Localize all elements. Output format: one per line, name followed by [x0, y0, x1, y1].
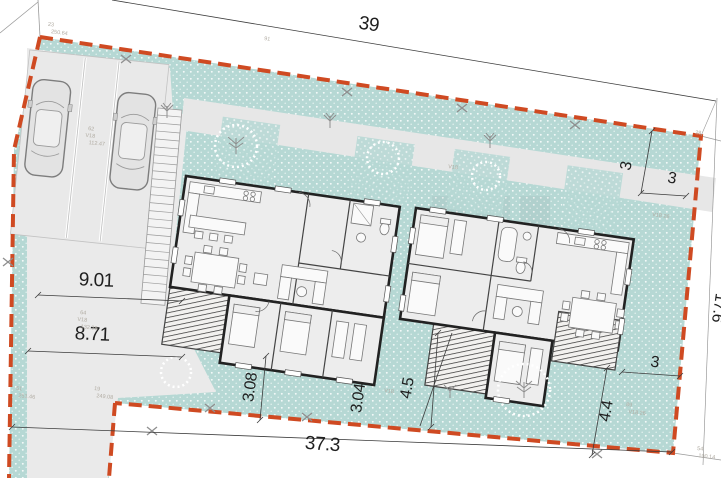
- survey-label: 54: [697, 446, 704, 453]
- survey-label: 91: [264, 36, 271, 43]
- terrace-deck: [162, 287, 230, 353]
- dim-right-side: 17.6: [708, 292, 721, 324]
- survey-label: 19: [94, 386, 101, 393]
- patio: [446, 149, 510, 216]
- survey-label: 89: [626, 402, 633, 409]
- survey-label: 51: [16, 386, 23, 393]
- dim-top-width: 39: [357, 13, 380, 37]
- survey-label: 190.14: [698, 453, 715, 461]
- dim-parking-upper: 9.01: [78, 269, 114, 292]
- parking-area: [10, 50, 169, 249]
- survey-label: 64: [80, 310, 87, 317]
- survey-label: 62: [88, 126, 95, 133]
- dim-bottom-width: 37.3: [304, 433, 340, 456]
- survey-label: V18: [85, 133, 95, 140]
- terrace-deck: [425, 324, 495, 394]
- patio: [349, 136, 415, 206]
- survey-label: 23: [48, 22, 55, 29]
- survey-label: 28: [695, 130, 702, 137]
- survey-label: V18: [77, 317, 87, 324]
- site-plan-canvas: 39 9.01 8.71 37.3 3.08 3.04 4.5 3 3 3 4.…: [0, 0, 721, 478]
- patio: [559, 165, 623, 232]
- site-plan-page: 39 9.01 8.71 37.3 3.08 3.04 4.5 3 3 3 4.…: [0, 0, 721, 478]
- patio: [214, 117, 280, 187]
- survey-label: 250.64: [51, 29, 68, 37]
